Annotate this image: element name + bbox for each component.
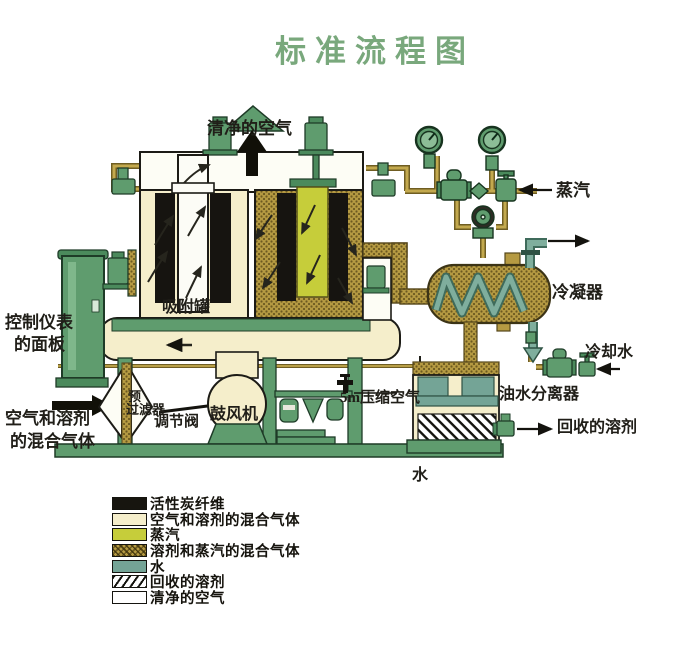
label-recovered-solvent: 回收的溶剂 (557, 418, 637, 438)
legend-swatch-clean-air (112, 591, 147, 604)
label-control-panel-2: 的面板 (14, 334, 65, 355)
adsorber-right-tank (255, 179, 363, 320)
steam-valve-2 (496, 179, 516, 201)
steam-valve-1 (441, 180, 467, 200)
blower (208, 352, 267, 444)
label-blower: 鼓风机 (210, 405, 258, 425)
label-steam: 蒸汽 (556, 180, 590, 201)
label-inlet-mixture-1: 空气和溶剂 (5, 408, 90, 429)
side-compartment (363, 258, 391, 320)
legend-swatch-water (112, 560, 147, 573)
legend: 活性炭纤维 空气和溶剂的混合气体 蒸汽 溶剂和蒸汽的混合气体 水 回收的溶剂 清… (112, 496, 300, 605)
label-compressed-air: 5m压缩空气 (340, 389, 420, 408)
process-diagram (0, 0, 700, 671)
legend-swatch-steam (112, 528, 147, 541)
condenser (428, 243, 550, 362)
label-cooling-water: 冷却水 (585, 343, 633, 363)
legend-item-clean-air: 清净的空气 (112, 590, 300, 606)
label-water: 水 (412, 466, 428, 486)
label-inlet-mixture-2: 的混合气体 (10, 431, 95, 452)
steam-column (297, 187, 328, 297)
standard-process-flow-page: 标准流程图 (0, 0, 700, 671)
label-adsorber: 吸附罐 (162, 298, 210, 318)
solvent-outlet-valve (497, 421, 514, 436)
legend-swatch-solvent-steam (112, 544, 147, 557)
label-condenser: 冷凝器 (552, 282, 603, 303)
label-regulating-valve: 调节阀 (154, 413, 199, 432)
legend-swatch-mixture (112, 513, 147, 526)
legend-swatch-recovered-solvent (112, 575, 147, 588)
steam-station (416, 127, 516, 238)
oil-water-separator (407, 322, 514, 453)
legend-item-solvent-steam-mixture: 溶剂和蒸汽的混合气体 (112, 543, 300, 559)
legend-swatch-carbon (112, 497, 147, 510)
label-control-panel-1: 控制仪表 (5, 312, 73, 333)
label-clean-air: 清净的空气 (207, 118, 292, 139)
label-oil-water-separator: 油水分离器 (499, 385, 579, 405)
legend-item-air-solvent-mixture: 空气和溶剂的混合气体 (112, 512, 300, 528)
steam-strainer (470, 183, 488, 199)
